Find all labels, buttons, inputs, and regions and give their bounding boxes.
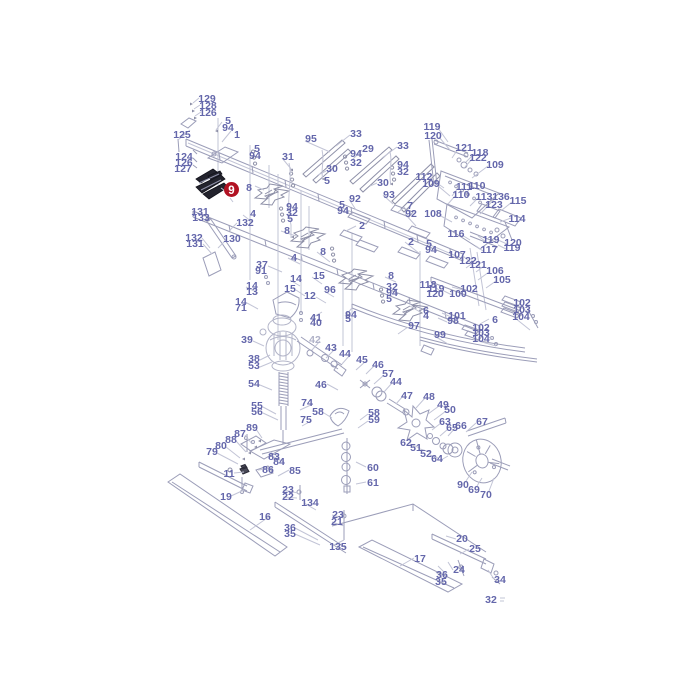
svg-text:25: 25 [469, 543, 481, 555]
svg-text:21: 21 [331, 516, 343, 528]
svg-text:94: 94 [337, 205, 349, 217]
svg-text:66: 66 [455, 420, 467, 432]
svg-text:5: 5 [386, 293, 392, 305]
svg-text:104: 104 [472, 333, 490, 345]
svg-text:4: 4 [423, 310, 429, 322]
svg-text:44: 44 [339, 348, 351, 360]
svg-text:94: 94 [425, 244, 437, 256]
svg-text:33: 33 [397, 140, 409, 152]
svg-text:35: 35 [435, 576, 447, 588]
svg-text:70: 70 [480, 489, 492, 501]
svg-text:32: 32 [397, 166, 409, 178]
svg-text:59: 59 [368, 414, 380, 426]
svg-text:134: 134 [301, 497, 319, 509]
svg-text:2: 2 [359, 220, 365, 232]
svg-text:130: 130 [223, 233, 241, 245]
svg-text:96: 96 [324, 284, 336, 296]
svg-text:30: 30 [377, 177, 389, 189]
svg-text:105: 105 [493, 274, 511, 286]
svg-text:92: 92 [349, 193, 361, 205]
svg-text:30: 30 [326, 163, 338, 175]
svg-text:95: 95 [305, 133, 317, 145]
svg-text:32: 32 [350, 157, 362, 169]
svg-text:45: 45 [356, 354, 368, 366]
svg-text:116: 116 [448, 228, 465, 240]
svg-text:86: 86 [262, 464, 274, 476]
svg-text:94: 94 [249, 150, 261, 162]
svg-text:56: 56 [251, 406, 263, 418]
svg-text:11: 11 [223, 468, 234, 480]
svg-text:19: 19 [220, 491, 232, 503]
svg-text:114: 114 [509, 213, 526, 225]
svg-text:8: 8 [284, 225, 290, 237]
svg-text:89: 89 [246, 422, 258, 434]
svg-text:8: 8 [246, 182, 252, 194]
svg-text:122: 122 [469, 152, 487, 164]
svg-text:119: 119 [504, 242, 521, 254]
svg-text:35: 35 [284, 528, 296, 540]
svg-text:131: 131 [186, 238, 204, 250]
svg-text:15: 15 [284, 283, 296, 295]
svg-text:99: 99 [434, 329, 446, 341]
svg-text:125: 125 [173, 129, 191, 141]
svg-text:8: 8 [320, 246, 326, 258]
svg-text:97: 97 [408, 320, 420, 332]
svg-text:71: 71 [235, 302, 247, 314]
svg-text:67: 67 [476, 416, 488, 428]
svg-text:115: 115 [510, 195, 527, 207]
svg-text:29: 29 [362, 143, 374, 155]
svg-text:104: 104 [512, 311, 530, 323]
svg-text:43: 43 [325, 342, 337, 354]
svg-text:42: 42 [309, 334, 321, 346]
svg-text:61: 61 [367, 477, 379, 489]
svg-text:1: 1 [234, 129, 240, 141]
svg-text:123: 123 [485, 199, 503, 211]
svg-text:93: 93 [383, 189, 395, 201]
svg-text:120: 120 [426, 288, 444, 300]
svg-text:6: 6 [492, 314, 498, 326]
svg-text:17: 17 [414, 553, 426, 565]
svg-text:58: 58 [312, 406, 324, 418]
svg-text:110: 110 [453, 189, 470, 201]
svg-text:12: 12 [304, 290, 316, 302]
svg-text:117: 117 [481, 244, 498, 256]
svg-text:33: 33 [350, 128, 362, 140]
svg-text:5: 5 [287, 213, 293, 225]
svg-text:132: 132 [236, 217, 254, 229]
svg-text:31: 31 [282, 151, 294, 163]
svg-text:47: 47 [401, 390, 413, 402]
svg-text:44: 44 [390, 376, 402, 388]
svg-text:88: 88 [225, 434, 237, 446]
svg-text:135: 135 [329, 541, 347, 553]
svg-text:121: 121 [469, 259, 487, 271]
svg-text:22: 22 [282, 491, 294, 503]
svg-text:20: 20 [456, 533, 468, 545]
svg-text:5: 5 [324, 175, 330, 187]
svg-text:60: 60 [367, 462, 379, 474]
svg-text:24: 24 [453, 564, 465, 576]
svg-text:109: 109 [422, 178, 440, 190]
svg-text:5: 5 [345, 313, 351, 325]
svg-text:108: 108 [424, 208, 442, 220]
svg-text:46: 46 [315, 379, 327, 391]
svg-text:40: 40 [310, 317, 322, 329]
svg-text:34: 34 [494, 574, 506, 586]
svg-text:2: 2 [408, 236, 414, 248]
svg-text:133: 133 [192, 212, 210, 224]
svg-text:85: 85 [289, 465, 301, 477]
svg-text:53: 53 [248, 360, 260, 372]
svg-text:79: 79 [206, 446, 218, 458]
svg-text:13: 13 [246, 286, 258, 298]
svg-text:69: 69 [468, 484, 480, 496]
svg-text:120: 120 [424, 130, 442, 142]
svg-text:126: 126 [199, 107, 217, 119]
svg-text:127: 127 [174, 163, 192, 175]
svg-text:48: 48 [423, 391, 435, 403]
svg-text:39: 39 [241, 334, 253, 346]
svg-text:100: 100 [449, 288, 467, 300]
svg-text:16: 16 [259, 511, 271, 523]
svg-text:54: 54 [248, 378, 260, 390]
svg-text:84: 84 [273, 456, 285, 468]
svg-text:98: 98 [447, 315, 459, 327]
svg-text:94: 94 [222, 122, 234, 134]
svg-text:75: 75 [300, 414, 312, 426]
svg-text:109: 109 [486, 159, 504, 171]
svg-text:32: 32 [485, 594, 497, 606]
svg-text:4: 4 [291, 252, 297, 264]
svg-text:64: 64 [431, 453, 443, 465]
svg-text:50: 50 [444, 404, 456, 416]
svg-text:91: 91 [255, 265, 267, 277]
svg-text:92: 92 [405, 208, 417, 220]
svg-text:9: 9 [228, 185, 234, 197]
svg-text:15: 15 [313, 270, 325, 282]
